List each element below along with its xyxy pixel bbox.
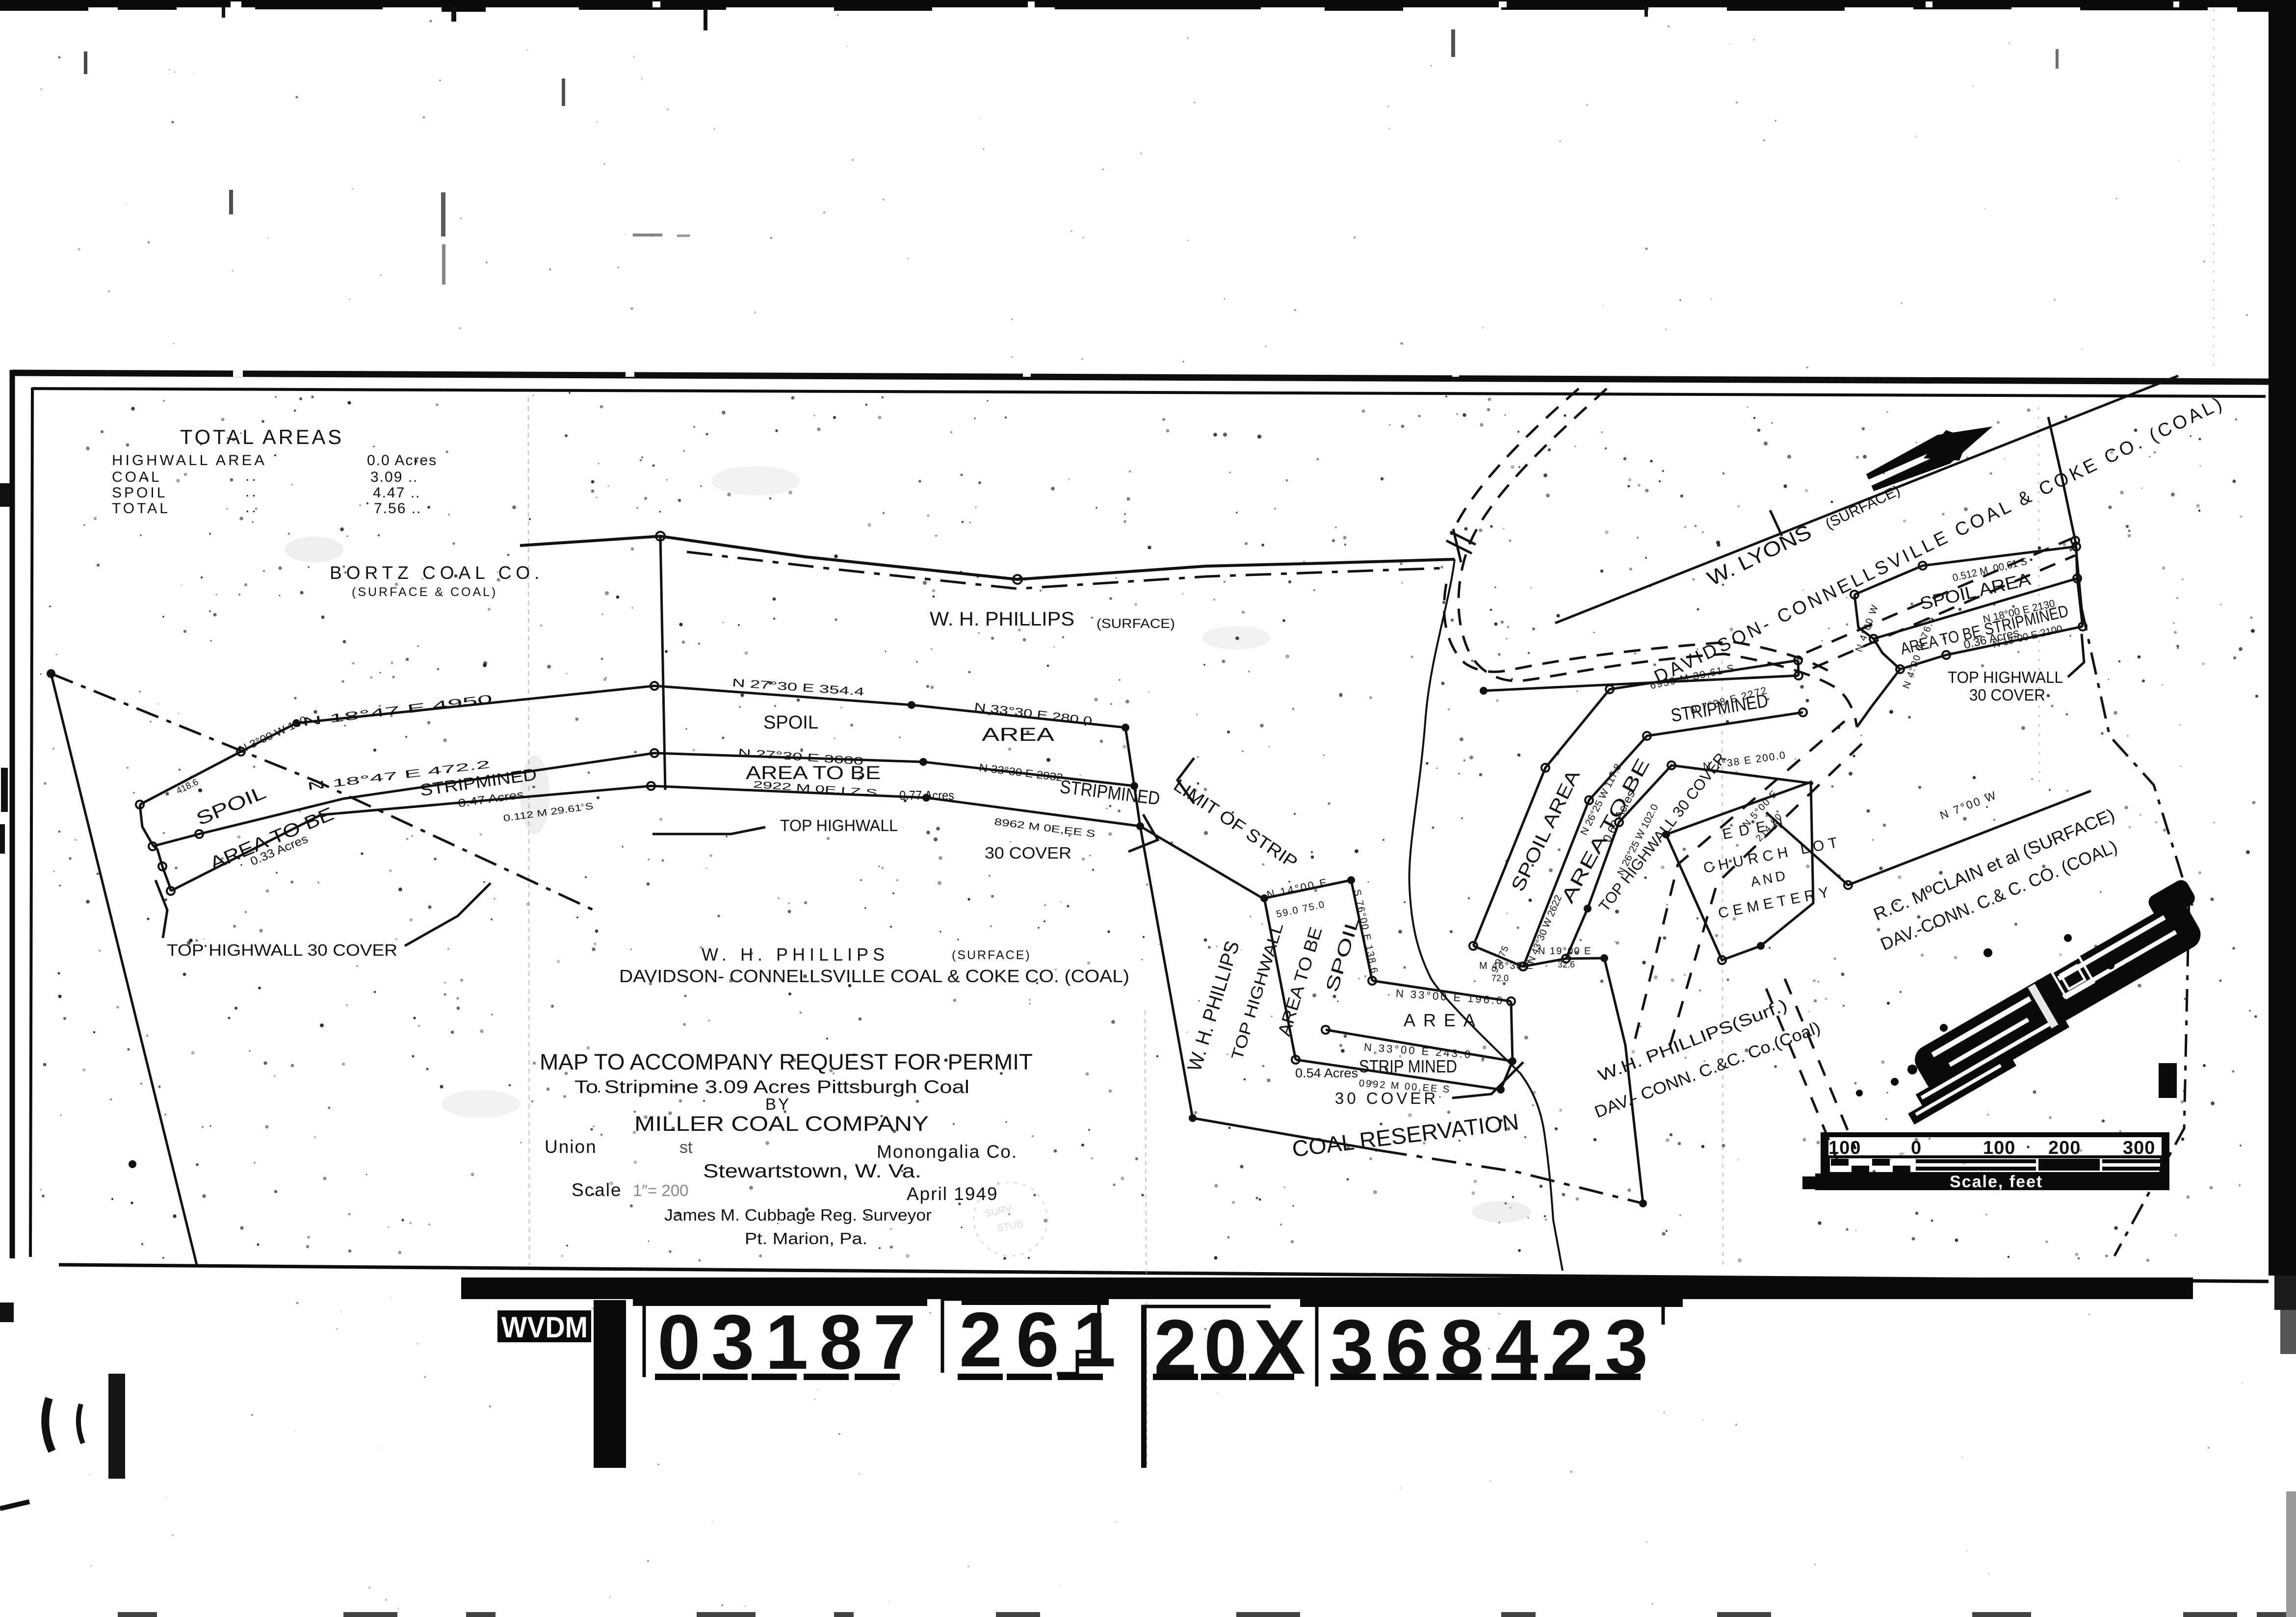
svg-text:30 COVER: 30 COVER	[1335, 1089, 1438, 1107]
svg-text:WVDM: WVDM	[501, 1311, 588, 1344]
svg-text:Union: Union	[545, 1137, 597, 1157]
svg-text:BY: BY	[765, 1095, 791, 1113]
svg-text:W. H. PHILLIPS: W. H. PHILLIPS	[702, 944, 889, 965]
svg-text:200: 200	[2048, 1138, 2081, 1158]
svg-text:0: 0	[1911, 1138, 1921, 1158]
svg-text:(SURFACE): (SURFACE)	[1096, 616, 1175, 631]
svg-text:BORTZ COAL CO.: BORTZ COAL CO.	[330, 563, 544, 583]
svg-text:COAL: COAL	[112, 469, 162, 485]
svg-text:Scale, feet: Scale, feet	[1950, 1173, 2043, 1191]
svg-text:STRIP MINED: STRIP MINED	[1359, 1056, 1457, 1076]
svg-text:W. H. PHILLIPS: W. H. PHILLIPS	[930, 608, 1074, 630]
svg-text:100: 100	[1828, 1138, 1861, 1158]
svg-text:TOP HIGHWALL: TOP HIGHWALL	[1948, 668, 2063, 686]
svg-text:..: ..	[245, 484, 259, 500]
svg-text:MILLER COAL COMPANY: MILLER COAL COMPANY	[634, 1112, 929, 1136]
svg-text:(SURFACE): (SURFACE)	[952, 948, 1031, 962]
svg-text:30 COVER: 30 COVER	[1969, 686, 2045, 704]
svg-text:TOTAL AREAS: TOTAL AREAS	[180, 425, 344, 448]
svg-text:72.0: 72.0	[1491, 973, 1509, 983]
svg-text:32.6: 32.6	[1558, 960, 1575, 969]
svg-text:0.0 Acres: 0.0 Acres	[367, 452, 437, 469]
svg-text:TOP HIGHWALL: TOP HIGHWALL	[780, 816, 898, 835]
svg-text:Pt. Marion, Pa.: Pt. Marion, Pa.	[745, 1229, 867, 1248]
svg-text:SPOIL: SPOIL	[112, 485, 167, 501]
svg-text:261: 261	[959, 1297, 1130, 1383]
svg-text:AREA: AREA	[1404, 1010, 1483, 1030]
svg-text:1″= 200: 1″= 200	[633, 1181, 689, 1200]
svg-text:100: 100	[1983, 1138, 2015, 1158]
svg-text:30 COVER: 30 COVER	[985, 844, 1071, 862]
svg-text:Stewartstown, W. Va.: Stewartstown, W. Va.	[703, 1161, 921, 1182]
svg-text:DAVIDSON- CONNELLSVILLE COAL: DAVIDSON- CONNELLSVILLE COAL & COKE CO. …	[619, 966, 1129, 986]
svg-text:M 46°30 E: M 46°30 E	[1479, 961, 1534, 971]
svg-text:st: st	[679, 1138, 693, 1157]
svg-text:03187: 03187	[657, 1299, 927, 1385]
svg-text:3.09 ..: 3.09 ..	[370, 469, 418, 485]
svg-text:..: ..	[245, 499, 259, 516]
svg-text:James M. Cubbage Reg. Surveyo: James M. Cubbage Reg. Surveyor	[664, 1206, 932, 1224]
svg-text:(SURFACE & COAL): (SURFACE & COAL)	[352, 585, 497, 599]
svg-text:0.77 Acres: 0.77 Acres	[899, 788, 954, 803]
svg-text:AREA: AREA	[982, 725, 1055, 745]
svg-text:0.54 Acres: 0.54 Acres	[1295, 1066, 1358, 1080]
svg-text:TOTAL: TOTAL	[112, 500, 170, 517]
svg-text:MAP TO ACCOMPANY REQUEST FOR P: MAP TO ACCOMPANY REQUEST FOR PERMIT	[540, 1049, 1033, 1074]
svg-text:N 19°00 E: N 19°00 E	[1538, 946, 1592, 957]
svg-text:4.47 ..: 4.47 ..	[373, 485, 420, 501]
svg-text:300: 300	[2123, 1138, 2155, 1158]
svg-text:7.56 ..: 7.56 ..	[374, 500, 421, 517]
svg-text:HIGHWALL AREA: HIGHWALL AREA	[112, 452, 267, 469]
svg-text:SPOIL: SPOIL	[763, 712, 818, 733]
svg-text:..: ..	[245, 468, 259, 484]
svg-text:TOP HIGHWALL 30 COVER: TOP HIGHWALL 30 COVER	[167, 941, 397, 959]
svg-text:To Stripmine 3.09 Acres Pittsb: To Stripmine 3.09 Acres Pittsburgh Coal	[574, 1077, 969, 1097]
svg-text:Monongalia Co.: Monongalia Co.	[877, 1142, 1018, 1162]
svg-text:Scale: Scale	[572, 1180, 622, 1200]
